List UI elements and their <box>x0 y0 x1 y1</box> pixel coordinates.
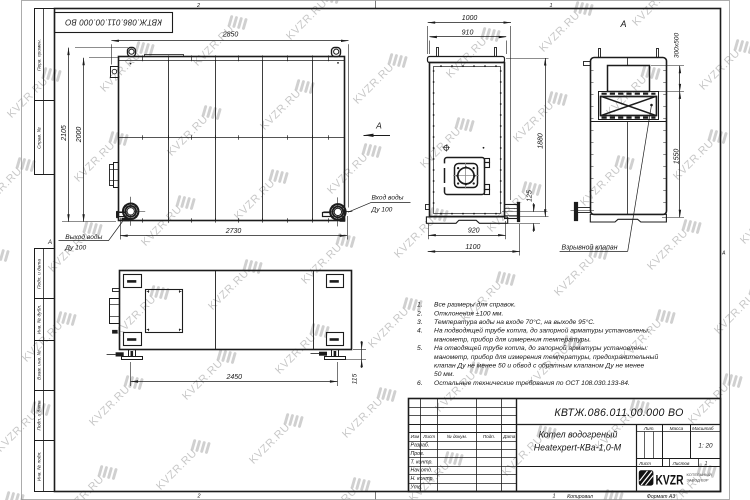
svg-text:Инв. № подл.: Инв. № подл. <box>36 451 42 481</box>
svg-text:Лист: Лист <box>422 434 435 439</box>
svg-text:1: 1 <box>552 494 555 500</box>
svg-text:50 мм.: 50 мм. <box>434 371 454 378</box>
svg-text:2730: 2730 <box>225 228 242 235</box>
svg-text:Выход воды: Выход воды <box>65 233 102 241</box>
svg-text:Лист: Лист <box>638 461 651 466</box>
svg-text:Котел водогреный: Котел водогреный <box>539 430 618 440</box>
svg-text:910: 910 <box>462 29 474 36</box>
svg-text:1.: 1. <box>417 302 423 309</box>
svg-text:2: 2 <box>196 494 200 500</box>
svg-text:1000: 1000 <box>462 15 478 22</box>
svg-text:KVZR: KVZR <box>656 472 684 488</box>
svg-text:2850: 2850 <box>222 32 239 39</box>
svg-text:Масса: Масса <box>670 426 684 431</box>
svg-text:Температура воды на входе 70°С: Температура воды на входе 70°С, на выход… <box>434 318 595 326</box>
svg-text:№ докум.: № докум. <box>447 434 467 439</box>
svg-text:5.: 5. <box>417 345 423 352</box>
svg-text:А: А <box>721 251 726 257</box>
svg-text:Подп. и дата: Подп. и дата <box>36 259 42 289</box>
svg-text:КВТЖ.086.011.00.000 ВО: КВТЖ.086.011.00.000 ВО <box>65 18 162 27</box>
svg-text:Изм: Изм <box>411 434 420 439</box>
svg-text:920: 920 <box>468 228 480 235</box>
svg-text:Ду 100: Ду 100 <box>371 206 393 213</box>
svg-text:2000: 2000 <box>76 127 83 144</box>
svg-text:Справ. №: Справ. № <box>36 127 42 149</box>
svg-text:2.: 2. <box>416 310 423 317</box>
svg-text:А: А <box>619 19 626 29</box>
svg-text:Пров.: Пров. <box>411 451 425 457</box>
svg-text:1100: 1100 <box>465 244 480 251</box>
svg-text:Heatexpert-КВа-1,0-М: Heatexpert-КВа-1,0-М <box>534 443 622 453</box>
svg-text:1: 1 <box>705 461 708 467</box>
svg-text:Т. контр.: Т. контр. <box>411 459 433 465</box>
svg-text:КВТЖ.086.011.00.000 ВО: КВТЖ.086.011.00.000 ВО <box>554 407 683 419</box>
svg-text:Остальные технические требован: Остальные технические требования по ОСТ … <box>434 379 630 387</box>
svg-text:3.: 3. <box>417 319 423 326</box>
svg-text:Ду 100: Ду 100 <box>64 244 86 251</box>
svg-text:Инв. № дубл.: Инв. № дубл. <box>36 305 42 335</box>
svg-text:1: 20: 1: 20 <box>698 443 713 450</box>
svg-text:Взрывной клапан: Взрывной клапан <box>562 243 618 251</box>
svg-text:2105: 2105 <box>61 125 68 142</box>
svg-text:Разраб.: Разраб. <box>411 443 430 449</box>
svg-text:Взам. инв. №: Взам. инв. № <box>36 350 42 380</box>
svg-text:Масштаб: Масштаб <box>692 426 714 431</box>
svg-text:Лит.: Лит. <box>643 426 655 431</box>
svg-text:2450: 2450 <box>226 374 243 381</box>
svg-text:На отводящей трубе котла, до з: На отводящей трубе котла, до запорной ар… <box>434 344 648 352</box>
svg-text:манометр, прибор для измерения: манометр, прибор для измерения температу… <box>434 353 658 361</box>
svg-text:Перв. примен.: Перв. примен. <box>36 39 42 71</box>
svg-text:1550: 1550 <box>674 149 681 165</box>
svg-text:4.: 4. <box>417 328 423 335</box>
svg-text:125: 125 <box>526 190 533 202</box>
svg-text:Дата: Дата <box>502 434 516 439</box>
svg-text:1880: 1880 <box>538 133 545 149</box>
svg-text:А: А <box>47 240 52 246</box>
svg-text:6.: 6. <box>417 380 423 387</box>
svg-text:клапан Ду не менее 50 и обвод: клапан Ду не менее 50 и обвод с обратным… <box>434 362 645 370</box>
svg-text:115: 115 <box>351 373 358 384</box>
svg-text:Нач.отд.: Нач.отд. <box>411 468 433 474</box>
svg-text:Вход воды: Вход воды <box>372 194 404 202</box>
svg-text:А: А <box>375 121 382 131</box>
svg-text:Отклонения ±100 мм.: Отклонения ±100 мм. <box>434 310 504 317</box>
svg-text:манометр, прибор для измерения: манометр, прибор для измерения температу… <box>434 335 591 343</box>
svg-text:ЗАВОД ВЗР: ЗАВОД ВЗР <box>687 477 709 482</box>
svg-text:На подводящей трубе котла, до: На подводящей трубе котла, до запорной а… <box>434 327 650 335</box>
svg-text:300х500: 300х500 <box>674 33 681 59</box>
svg-text:Н. контр.: Н. контр. <box>411 476 434 482</box>
svg-text:Утв.: Утв. <box>411 485 423 491</box>
svg-text:Подп.: Подп. <box>483 434 495 439</box>
svg-text:Все размеры для справок.: Все размеры для справок. <box>434 301 516 309</box>
svg-text:Копировал: Копировал <box>567 494 593 500</box>
svg-text:Подп. и дата: Подп. и дата <box>36 400 42 430</box>
svg-text:Листов: Листов <box>672 461 690 466</box>
svg-text:Формат А3: Формат А3 <box>647 494 675 500</box>
